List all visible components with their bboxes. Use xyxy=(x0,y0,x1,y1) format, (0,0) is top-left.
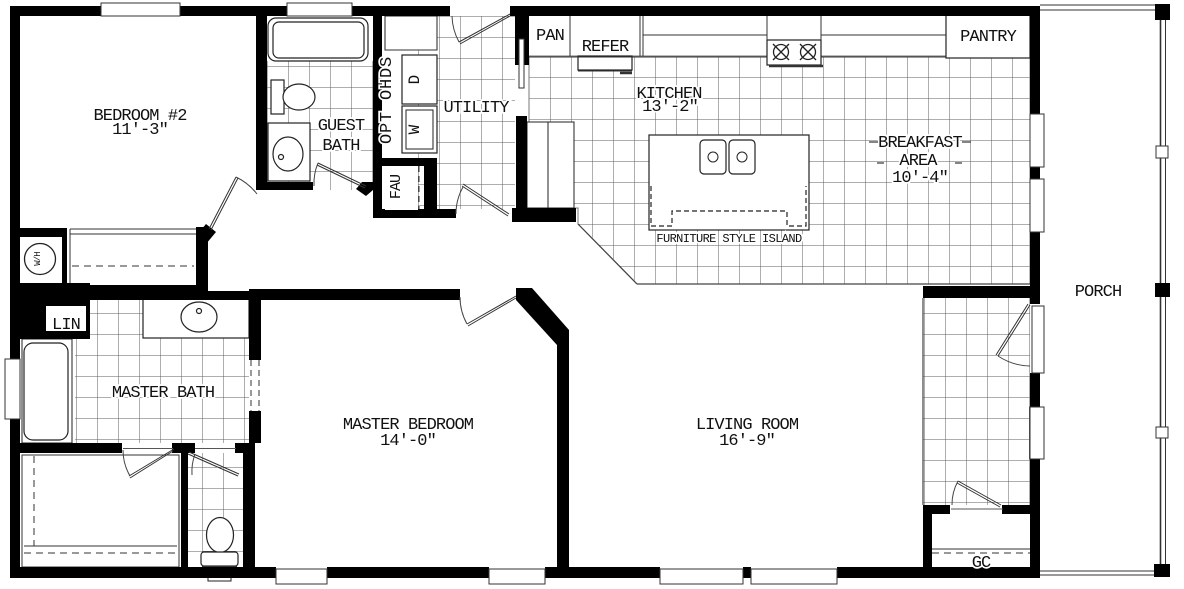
svg-text:FURNITURE STYLE ISLAND: FURNITURE STYLE ISLAND xyxy=(656,232,802,246)
svg-text:D: D xyxy=(406,75,424,84)
svg-text:GC: GC xyxy=(972,554,991,573)
svg-text:13'-2": 13'-2" xyxy=(642,98,698,117)
svg-text:14'-0": 14'-0" xyxy=(380,432,436,451)
svg-text:REFER: REFER xyxy=(582,38,629,57)
svg-text:11'-3": 11'-3" xyxy=(112,121,168,140)
svg-text:UTILITY: UTILITY xyxy=(443,99,509,118)
svg-text:BREAKFAST: BREAKFAST xyxy=(878,134,962,153)
svg-text:FAU: FAU xyxy=(388,175,405,199)
svg-text:W: W xyxy=(406,124,424,134)
svg-text:PANTRY: PANTRY xyxy=(960,28,1017,47)
svg-text:PAN: PAN xyxy=(536,27,564,46)
svg-text:MASTER BATH: MASTER BATH xyxy=(112,384,214,403)
svg-text:W/H: W/H xyxy=(33,252,43,266)
svg-text:LIN: LIN xyxy=(52,316,80,335)
svg-text:GUEST: GUEST xyxy=(318,117,365,136)
svg-text:OPT OHDS: OPT OHDS xyxy=(378,56,397,144)
svg-text:PORCH: PORCH xyxy=(1075,283,1122,302)
svg-text:10'-4": 10'-4" xyxy=(892,169,948,188)
svg-text:16'-9": 16'-9" xyxy=(719,432,775,451)
svg-text:BATH: BATH xyxy=(322,137,359,156)
